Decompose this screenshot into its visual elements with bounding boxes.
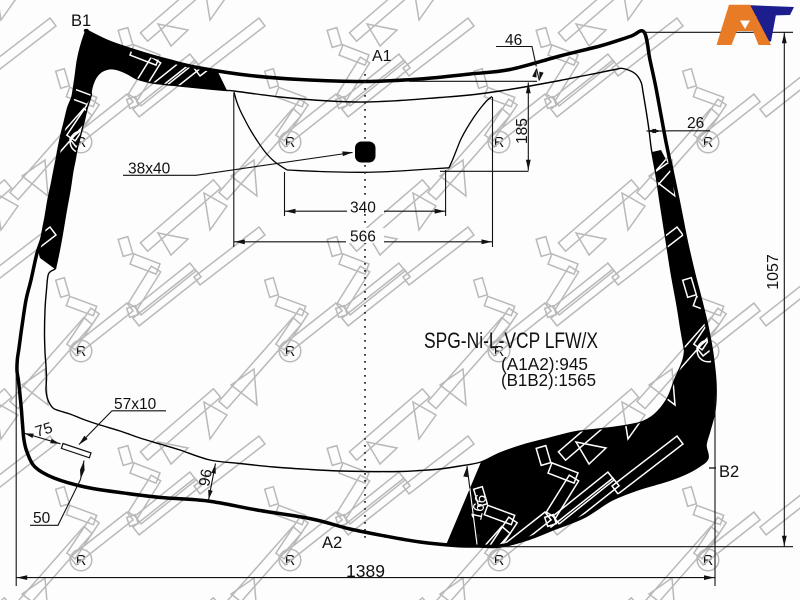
- svg-text:50: 50: [33, 510, 51, 527]
- svg-text:57x10: 57x10: [114, 396, 157, 413]
- svg-text:SPG-Ni-L-VCP LFW/X: SPG-Ni-L-VCP LFW/X: [424, 328, 598, 353]
- svg-text:340: 340: [350, 200, 376, 217]
- svg-text:566: 566: [350, 229, 376, 246]
- svg-text:1389: 1389: [346, 561, 385, 581]
- svg-text:38x40: 38x40: [128, 161, 171, 178]
- svg-text:(B1B2):1565: (B1B2):1565: [501, 370, 596, 390]
- svg-text:B1: B1: [71, 12, 91, 30]
- svg-text:46: 46: [505, 32, 522, 49]
- svg-text:A1: A1: [372, 48, 392, 65]
- svg-text:1057: 1057: [765, 254, 782, 290]
- svg-text:185: 185: [514, 118, 531, 144]
- svg-text:B2: B2: [719, 463, 739, 481]
- svg-text:26: 26: [687, 115, 704, 132]
- svg-text:A2: A2: [322, 534, 342, 552]
- svg-text:96: 96: [196, 468, 216, 488]
